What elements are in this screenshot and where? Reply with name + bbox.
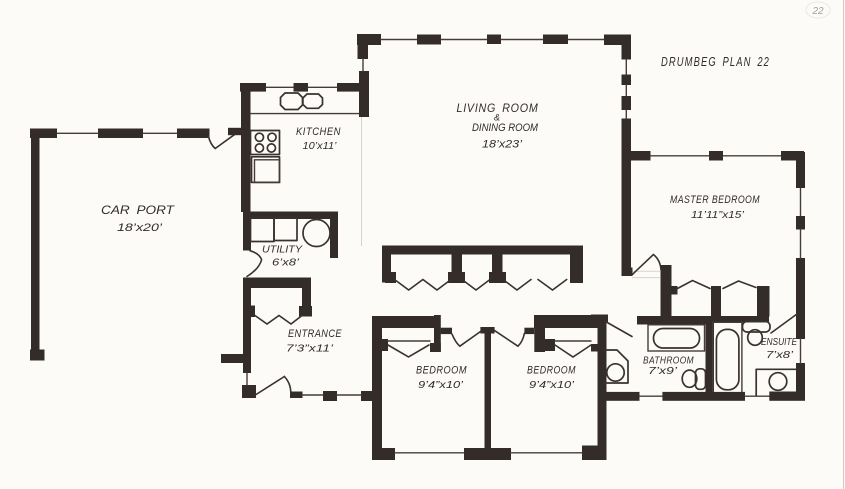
- svg-text:11’11”x15’: 11’11”x15’: [691, 209, 745, 221]
- svg-text:DINING ROOM: DINING ROOM: [472, 122, 539, 134]
- svg-text:9’4”x10’: 9’4”x10’: [418, 379, 464, 391]
- svg-text:10’x11’: 10’x11’: [303, 140, 338, 152]
- svg-text:ENSUITE: ENSUITE: [761, 337, 797, 348]
- svg-text:BEDROOM: BEDROOM: [416, 365, 467, 377]
- svg-text:22: 22: [811, 6, 824, 17]
- svg-text:18’x20’: 18’x20’: [117, 222, 163, 234]
- svg-text:DRUMBEG PLAN 22: DRUMBEG PLAN 22: [661, 55, 770, 69]
- svg-text:MASTER BEDROOM: MASTER BEDROOM: [670, 194, 760, 206]
- svg-text:7’x8’: 7’x8’: [766, 349, 794, 361]
- svg-text:ENTRANCE: ENTRANCE: [288, 328, 342, 340]
- svg-text:UTILITY: UTILITY: [262, 244, 303, 256]
- svg-text:BEDROOM: BEDROOM: [527, 365, 576, 377]
- svg-text:CAR PORT: CAR PORT: [101, 205, 175, 217]
- svg-text:9’4”x10’: 9’4”x10’: [529, 379, 575, 391]
- svg-text:6’x8’: 6’x8’: [272, 257, 300, 269]
- svg-text:7’x9’: 7’x9’: [648, 365, 678, 377]
- svg-text:18’x23’: 18’x23’: [482, 139, 523, 151]
- svg-text:KITCHEN: KITCHEN: [296, 126, 341, 138]
- svg-text:&: &: [494, 113, 500, 123]
- svg-text:7’3”x11’: 7’3”x11’: [286, 343, 334, 355]
